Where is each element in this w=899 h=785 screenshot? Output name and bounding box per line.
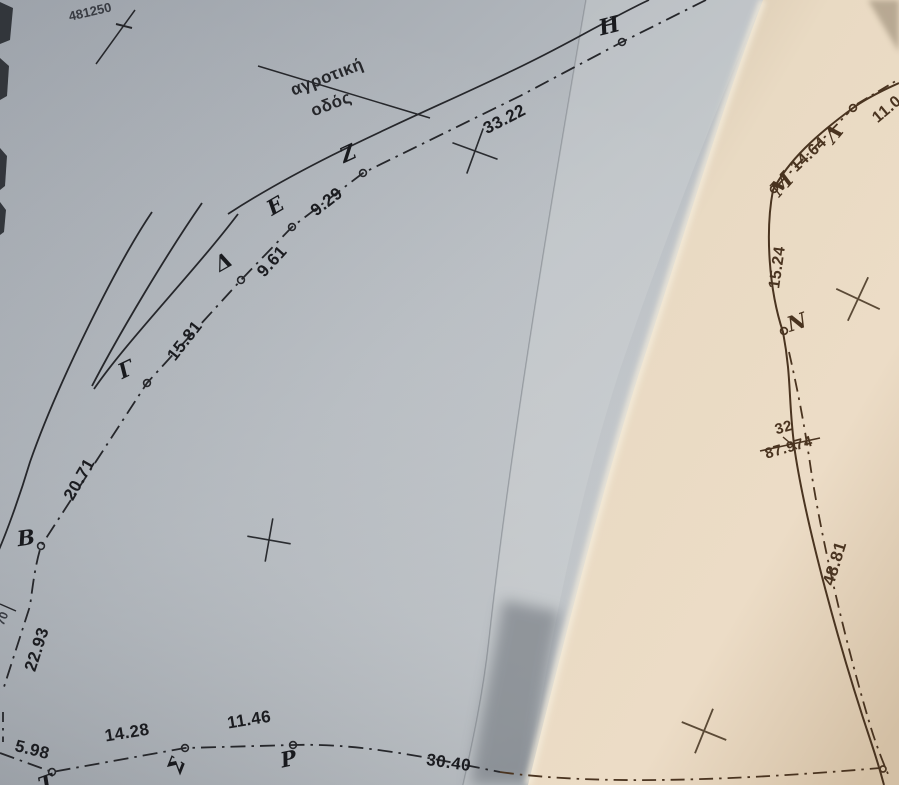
map-drawing: ΗΖΕΔΓΒΣΡΤΛΜΝ33.229.299.6115.8120.7122.93… (0, 0, 899, 785)
point-b-label: Β (14, 524, 36, 551)
survey-map-photo: ΗΖΕΔΓΒΣΡΤΛΜΝ33.229.299.6115.8120.7122.93… (0, 0, 899, 785)
